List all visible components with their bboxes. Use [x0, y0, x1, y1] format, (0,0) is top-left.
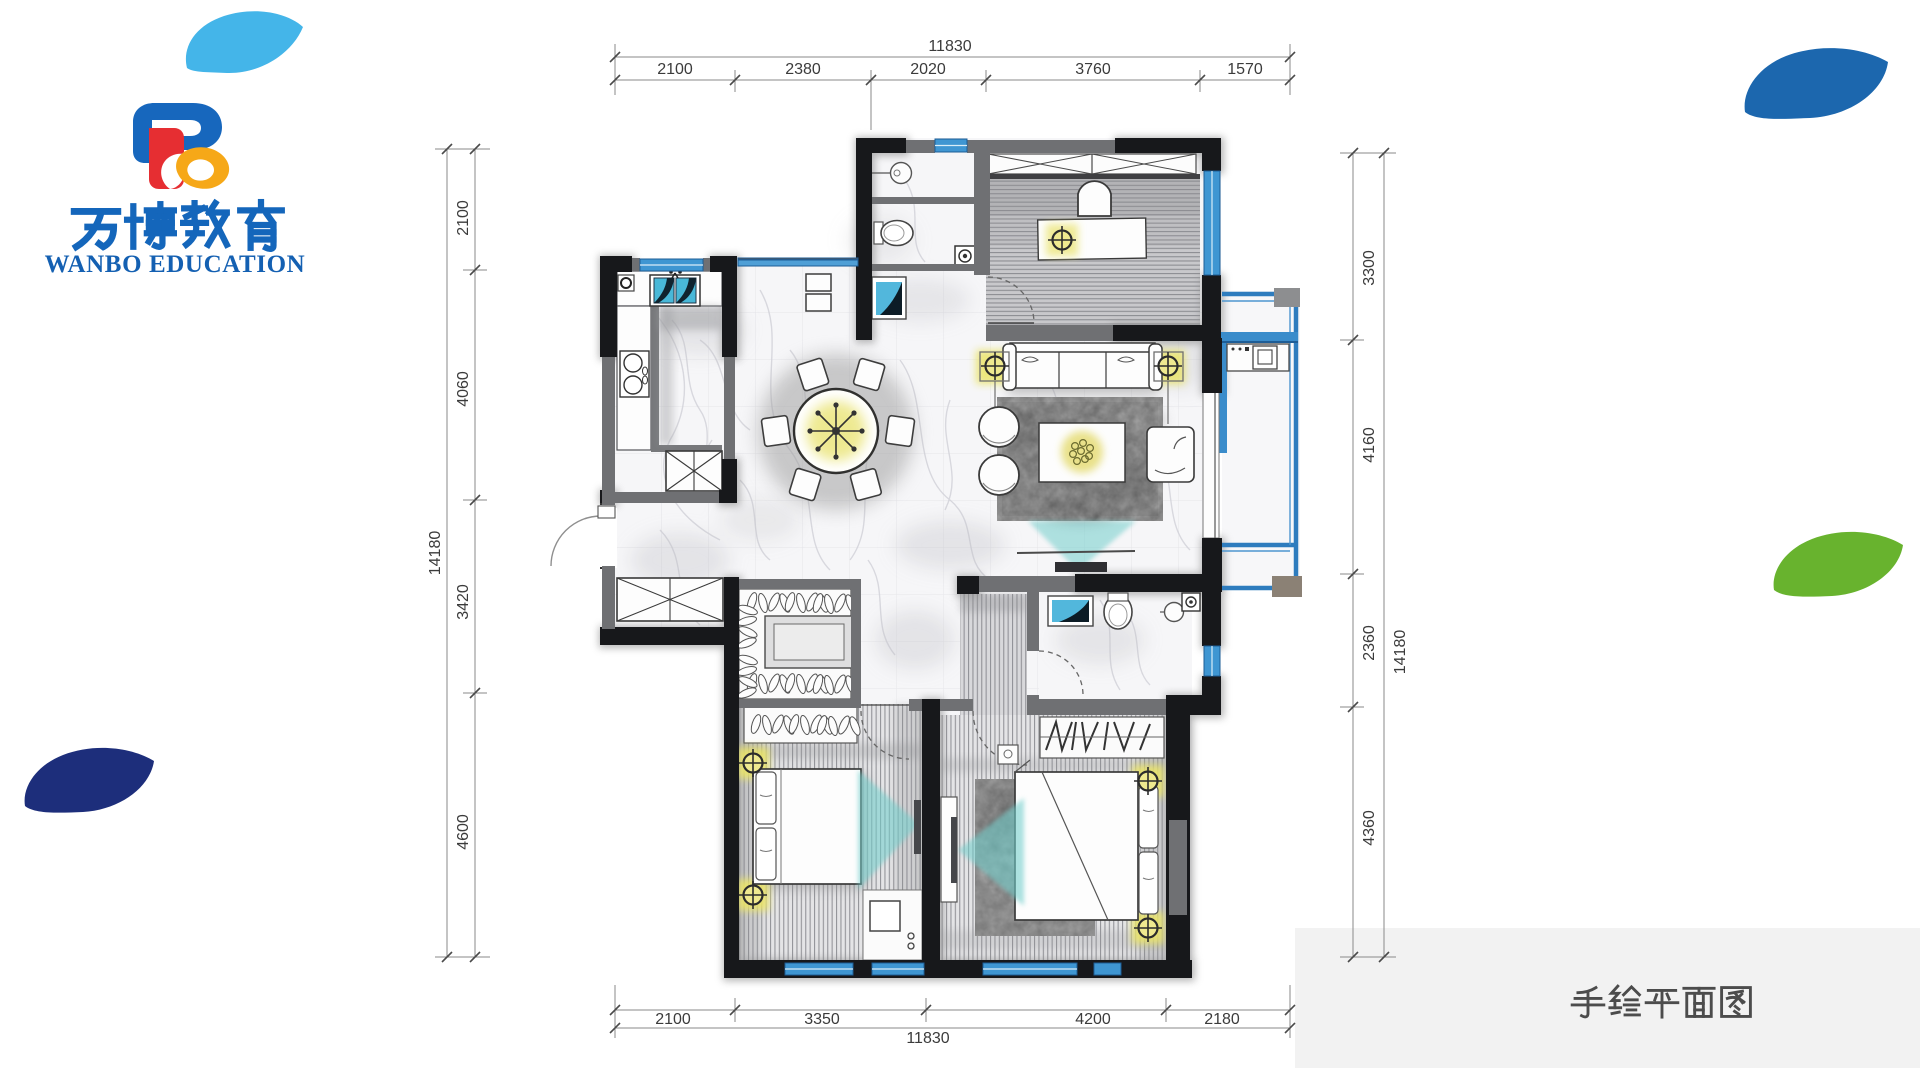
svg-text:4060: 4060 [455, 371, 472, 407]
svg-text:3420: 3420 [455, 584, 472, 620]
svg-text:11830: 11830 [906, 1030, 949, 1047]
svg-text:2100: 2100 [455, 200, 472, 236]
svg-text:WANBO EDUCATION: WANBO EDUCATION [45, 251, 306, 278]
svg-text:2100: 2100 [655, 1011, 691, 1028]
svg-text:14180: 14180 [427, 531, 444, 576]
svg-text:14180: 14180 [1392, 630, 1409, 675]
svg-text:11830: 11830 [928, 38, 971, 55]
svg-text:4600: 4600 [455, 814, 472, 850]
svg-text:4200: 4200 [1075, 1011, 1111, 1028]
svg-text:4360: 4360 [1361, 810, 1378, 846]
svg-text:2380: 2380 [785, 61, 821, 78]
svg-text:4160: 4160 [1361, 427, 1378, 463]
svg-text:3300: 3300 [1361, 250, 1378, 286]
svg-text:2020: 2020 [910, 61, 946, 78]
svg-text:2100: 2100 [657, 61, 693, 78]
svg-text:2360: 2360 [1361, 625, 1378, 661]
svg-text:3760: 3760 [1075, 61, 1111, 78]
svg-text:3350: 3350 [804, 1011, 840, 1028]
svg-text:2180: 2180 [1204, 1011, 1240, 1028]
svg-text:1570: 1570 [1227, 61, 1263, 78]
